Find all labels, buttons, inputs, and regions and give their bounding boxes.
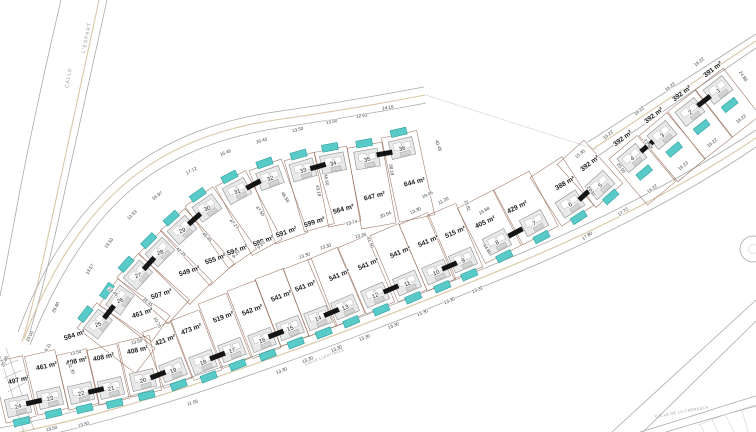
area-label-35: 647 m² bbox=[363, 190, 386, 202]
area-label-15: 541 m² bbox=[270, 289, 293, 304]
plot-22[interactable]: 22 bbox=[67, 382, 94, 414]
site-plan-stage: 1391 m²2392 m²3392 m²4392 m²5392 m²6388 … bbox=[0, 0, 756, 432]
pool bbox=[373, 303, 390, 316]
area-label-6: 388 m² bbox=[554, 175, 577, 192]
area-label-11: 541 m² bbox=[389, 245, 412, 260]
dimension-label: 13.30 bbox=[416, 308, 429, 317]
dimension-label: 10.70 bbox=[152, 316, 162, 329]
pool bbox=[721, 97, 738, 112]
pool bbox=[461, 268, 478, 281]
dimension-label: 13.30 bbox=[319, 242, 332, 250]
area-label-27: 507 m² bbox=[150, 288, 173, 302]
pool bbox=[356, 138, 373, 148]
dimension-label: 19.45 bbox=[421, 190, 434, 200]
area-label-18: 473 m² bbox=[180, 322, 203, 337]
plot-27[interactable]: 27 bbox=[118, 256, 153, 290]
roundabout-outer bbox=[740, 236, 756, 262]
dimension-label: 17.12 bbox=[185, 166, 198, 176]
dimension-label: 16.22 bbox=[735, 113, 747, 124]
pool bbox=[256, 157, 273, 169]
plot-24[interactable]: 24 bbox=[4, 395, 31, 427]
pool bbox=[200, 371, 217, 383]
dimension-label: 45.45 bbox=[201, 231, 213, 243]
road-connector bbox=[426, 95, 598, 150]
pool bbox=[290, 149, 307, 160]
area-label-16: 542 m² bbox=[241, 303, 264, 318]
area-label-13: 541 m² bbox=[328, 268, 351, 283]
dimension-label: 13.30 bbox=[443, 296, 456, 305]
plot-26[interactable]: 26 bbox=[99, 282, 134, 315]
area-label-14: 541 m² bbox=[294, 279, 317, 294]
dimension-label: 11.20 bbox=[437, 196, 450, 206]
area-label-19: 421 m² bbox=[154, 333, 177, 348]
party-wall-31-32 bbox=[245, 179, 261, 191]
dimension-label: 47.27 bbox=[228, 218, 240, 230]
area-label-17: 519 m² bbox=[212, 310, 235, 325]
dimension-label: 24.88 bbox=[738, 70, 749, 83]
dimension-label: 13.53 bbox=[126, 209, 138, 221]
dimension-label: 20.80 bbox=[0, 355, 9, 368]
dimension-label: 13.50 bbox=[291, 126, 304, 134]
dimension-label: 43.18 bbox=[315, 185, 322, 198]
area-label-25: 584 m² bbox=[63, 329, 86, 343]
dimension-label: 13.32 bbox=[471, 285, 484, 294]
area-label-34: 564 m² bbox=[332, 203, 355, 216]
dimension-label: 16.23 bbox=[677, 160, 689, 171]
party-wall-7-8 bbox=[507, 227, 523, 239]
pool bbox=[693, 119, 710, 134]
plot-7[interactable]: 7 bbox=[519, 209, 550, 244]
dimension-label: 16.22 bbox=[706, 137, 718, 148]
pool bbox=[76, 403, 93, 413]
party-wall-1-2 bbox=[696, 94, 712, 108]
area-label-7: 429 m² bbox=[506, 199, 529, 215]
area-label-28: 549 m² bbox=[178, 265, 201, 279]
pool bbox=[390, 127, 407, 137]
dimension-label: 20.54 bbox=[379, 210, 392, 219]
road-upper-band bbox=[18, 87, 598, 345]
area-label-12: 541 m² bbox=[357, 257, 380, 272]
dimension-label: 13.50 bbox=[103, 237, 114, 249]
dimension-label: 15.35 bbox=[574, 148, 586, 160]
area-label-9: 515 m² bbox=[444, 225, 467, 240]
pool bbox=[229, 359, 246, 371]
dimension-label: 13.30 bbox=[387, 321, 400, 330]
dimension-label: 13.30 bbox=[409, 206, 422, 215]
area-label-29: 555 m² bbox=[204, 252, 227, 266]
pool bbox=[321, 142, 338, 152]
area-label-23: 461 m² bbox=[35, 361, 58, 373]
dimension-label: 13.30 bbox=[358, 333, 371, 342]
road-label-calle: CALLE bbox=[64, 67, 74, 89]
pool bbox=[666, 142, 683, 158]
area-label-5: 392 m² bbox=[579, 154, 601, 173]
dimension-label: 46.60 bbox=[323, 174, 330, 187]
dimension-label: 17.72 bbox=[617, 206, 630, 217]
road-curb bbox=[22, 0, 99, 342]
dimension-label: 16.40 bbox=[255, 136, 268, 144]
dimension-label: 46.58 bbox=[280, 191, 291, 204]
area-label-26: 461 m² bbox=[131, 307, 154, 321]
pool bbox=[13, 416, 30, 426]
plot-28[interactable]: 28 bbox=[141, 233, 175, 267]
dimension-label: 13.50 bbox=[326, 118, 339, 125]
dimension-label: 13.50 bbox=[77, 420, 90, 428]
area-label-24: 497 m² bbox=[7, 375, 30, 387]
area-label-21: 408 m² bbox=[92, 352, 115, 364]
plot-20[interactable]: 20 bbox=[129, 369, 156, 401]
pool bbox=[636, 165, 653, 181]
dimension-label: 13.50 bbox=[130, 338, 143, 346]
dimension-label: 29.80 bbox=[51, 301, 61, 314]
parcels-layer bbox=[0, 68, 756, 423]
road-calle-espart bbox=[0, 0, 107, 342]
pool bbox=[45, 408, 62, 418]
dimension-label: 40.48 bbox=[434, 139, 443, 152]
dimension-label: 12.61 bbox=[356, 112, 369, 119]
road-edge bbox=[28, 0, 107, 338]
pool bbox=[138, 390, 155, 400]
dimension-label: 11.55 bbox=[186, 398, 199, 406]
dimension-label: 14.19 bbox=[382, 104, 394, 110]
area-label-10: 541 m² bbox=[417, 234, 440, 249]
roundabout-inner bbox=[749, 245, 756, 254]
area-label-8: 405 m² bbox=[474, 215, 497, 231]
road-edge bbox=[0, 0, 61, 296]
area-label-4: 392 m² bbox=[612, 129, 634, 148]
dimension-label: 16.97 bbox=[151, 190, 164, 201]
roundabout bbox=[740, 236, 756, 262]
dimension-label: 13.57 bbox=[85, 263, 96, 276]
site-plan-drawing: 1391 m²2392 m²3392 m²4392 m²5392 m²6388 … bbox=[0, 0, 756, 432]
area-label-20: 408 m² bbox=[126, 345, 149, 357]
area-label-33: 599 m² bbox=[303, 216, 326, 230]
dimension-label: 13.50 bbox=[69, 349, 82, 357]
dimension-label: 13.30 bbox=[298, 251, 311, 259]
dimension-label: 13.30 bbox=[275, 366, 288, 375]
dimension-label: 15.68 bbox=[478, 205, 491, 215]
dimension-label: 13.74 bbox=[345, 219, 358, 227]
dimension-label: 41.50 bbox=[366, 236, 375, 249]
area-label-36: 644 m² bbox=[403, 176, 426, 188]
dimension-label: 47.55 bbox=[255, 205, 266, 217]
plot-32[interactable]: 32 bbox=[256, 157, 285, 191]
dimension-label: 16.22 bbox=[693, 56, 705, 67]
dimension-label: 16.22 bbox=[633, 105, 645, 116]
area-label-32: 591 m² bbox=[275, 225, 298, 239]
dimension-label: 42.25 bbox=[175, 246, 187, 258]
dimension-label: 16.46 bbox=[219, 148, 232, 157]
dimension-label: 15.81 bbox=[463, 199, 471, 212]
